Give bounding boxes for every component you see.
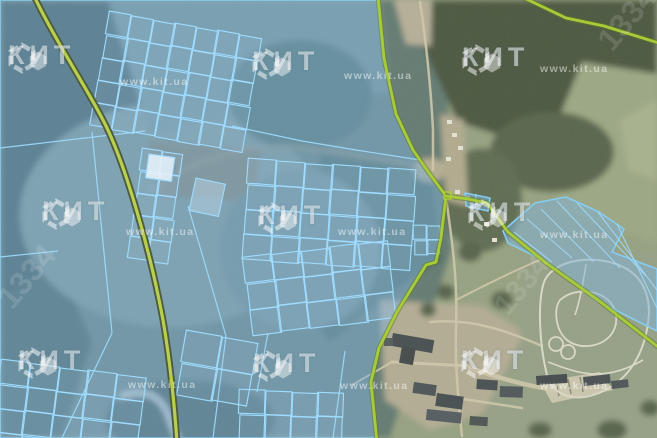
map-canvas[interactable] bbox=[0, 0, 657, 438]
map-viewport[interactable]: КИТКИТКИТКИТКИТКИТКИТКИТКИТwww.kit.uawww… bbox=[0, 0, 657, 438]
